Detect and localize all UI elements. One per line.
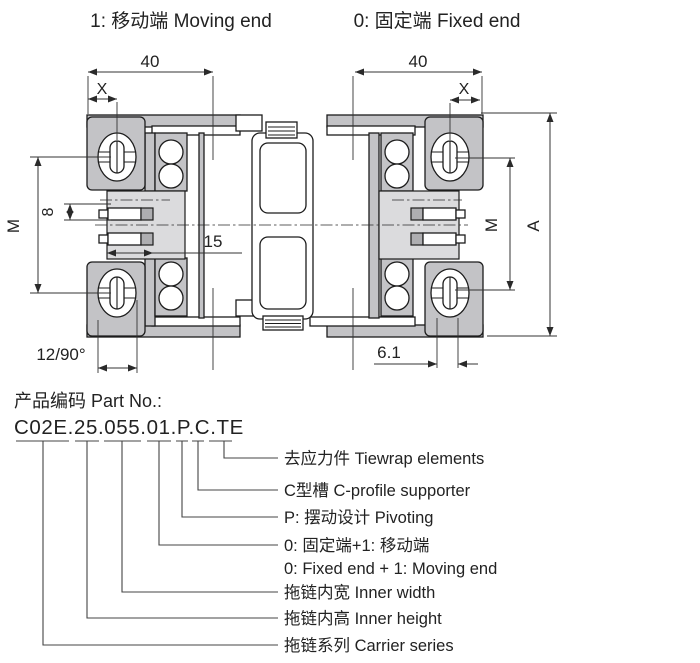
dim-8: 8 bbox=[40, 207, 57, 216]
dim-6-1: 6.1 bbox=[377, 343, 401, 362]
dim-15: 15 bbox=[204, 232, 223, 251]
callout-tiewrap: 去应力件 Tiewrap elements bbox=[284, 449, 484, 468]
part-number-section: 产品编码 Part No.: C02E.25.055.01.P.C.TE 去应力… bbox=[14, 391, 497, 655]
callout-pivoting: P: 摆动设计 Pivoting bbox=[284, 508, 433, 527]
catalog-figure: 1: 移动端 Moving end 0: 固定端 Fixed end bbox=[0, 0, 700, 663]
carrier-body bbox=[87, 115, 483, 337]
callout-lines bbox=[43, 441, 278, 645]
callout-inner-height: 拖链内高 Inner height bbox=[284, 609, 442, 628]
callout-carrier-series: 拖链系列 Carrier series bbox=[284, 636, 454, 655]
callout-end-type-en: 0: Fixed end + 1: Moving end bbox=[284, 560, 497, 578]
dim-m-right: M bbox=[482, 218, 501, 232]
chain-link bbox=[236, 115, 313, 330]
dim-a: A bbox=[524, 220, 543, 232]
part-no-title: 产品编码 Part No.: bbox=[14, 391, 162, 411]
moving-end-label: 1: 移动端 Moving end bbox=[90, 10, 272, 32]
dim-x-left: X bbox=[97, 81, 108, 98]
callout-inner-width: 拖链内宽 Inner width bbox=[284, 583, 435, 602]
callout-end-type-cn: 0: 固定端+1: 移动端 bbox=[284, 536, 429, 555]
callout-labels: 去应力件 Tiewrap elements C型槽 C-profile supp… bbox=[284, 449, 497, 655]
dim-40-right: 40 bbox=[409, 52, 428, 71]
technical-drawing: 1: 移动端 Moving end 0: 固定端 Fixed end bbox=[0, 0, 700, 663]
dim-40-left: 40 bbox=[141, 52, 160, 71]
end-labels: 1: 移动端 Moving end 0: 固定端 Fixed end bbox=[90, 10, 520, 32]
dim-m-left: M bbox=[4, 219, 23, 233]
dim-12-90: 12/90° bbox=[36, 345, 85, 364]
part-no-code: C02E.25.055.01.P.C.TE bbox=[14, 416, 244, 439]
dim-x-right: X bbox=[459, 81, 470, 98]
callout-c-profile: C型槽 C-profile supporter bbox=[284, 481, 471, 500]
fixed-end-label: 0: 固定端 Fixed end bbox=[354, 10, 521, 32]
